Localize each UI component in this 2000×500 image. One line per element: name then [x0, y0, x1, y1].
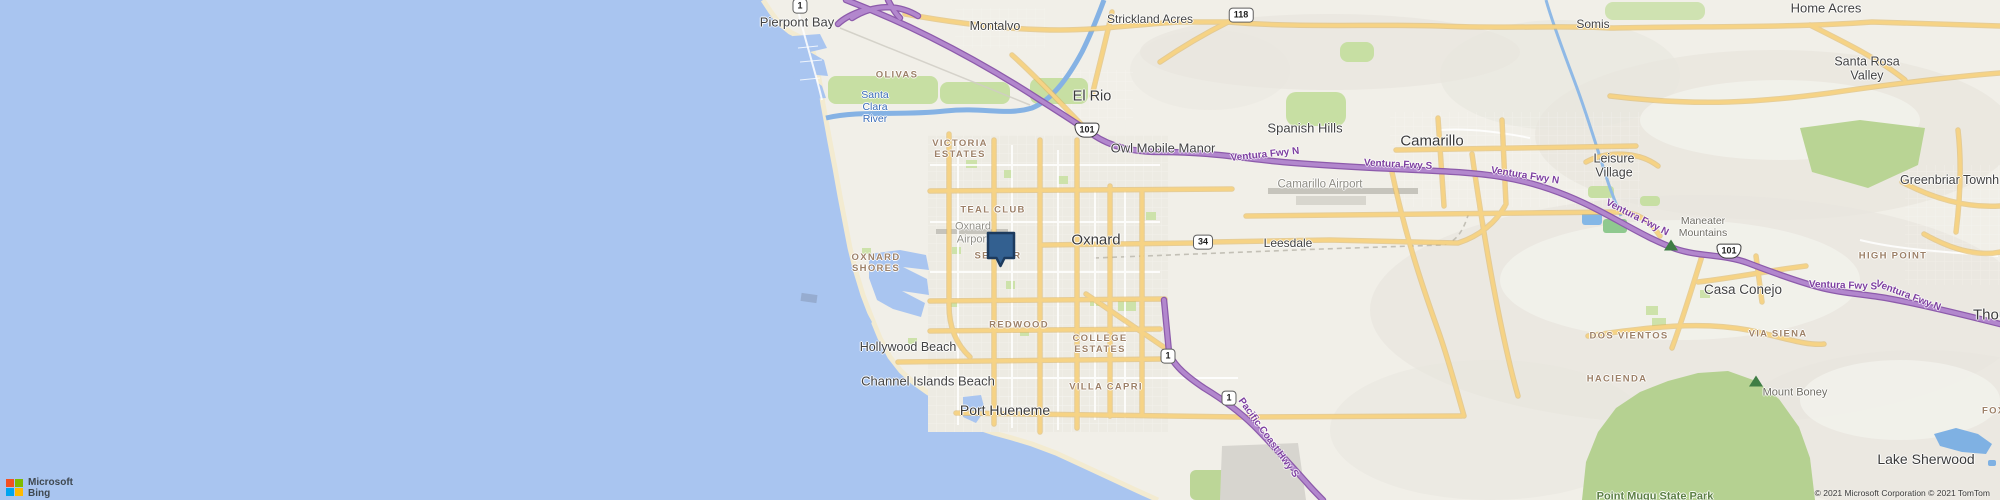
peak-icon-mount-boney	[1749, 376, 1763, 387]
ventura-fwy-n-label-2: Ventura Fwy N	[1490, 165, 1560, 187]
somis-label: Somis	[1576, 18, 1609, 32]
college-estates-label: COLLEGE ESTATES	[1072, 334, 1127, 356]
pierpont-bay-label: Pierpont Bay	[760, 16, 834, 31]
mount-boney-label: Mount Boney	[1763, 387, 1828, 400]
camarillo-label: Camarillo	[1400, 132, 1463, 149]
map-marker[interactable]	[984, 230, 1018, 270]
pacific-coast-hwy-s-label: Pacific Coast Hwy S	[1235, 396, 1300, 480]
olivas-label: OLIVAS	[876, 71, 918, 82]
bing-wordmark: Bing	[28, 488, 50, 499]
shield-ca1-mid: 1	[1160, 349, 1175, 364]
ventura-fwy-n-label-4: Ventura Fwy N	[1874, 278, 1942, 313]
home-acres-label: Home Acres	[1791, 2, 1862, 17]
point-mugu-state-park-label: Point Mugu State Park	[1597, 491, 1714, 500]
ventura-fwy-s-label-1: Ventura Fwy S	[1364, 157, 1433, 172]
bing-map-view[interactable]: 11011183410111Pierpont BayMontalvoStrick…	[0, 0, 2000, 500]
port-hueneme-label: Port Hueneme	[960, 402, 1050, 418]
ventura-fwy-n-label-1: Ventura Fwy N	[1230, 146, 1300, 165]
high-point-label: HIGH POINT	[1859, 252, 1927, 263]
leesdale-label: Leesdale	[1264, 237, 1313, 251]
santa-rosa-valley-label: Santa Rosa Valley	[1834, 55, 1899, 84]
leisure-village-label: Leisure Village	[1594, 152, 1635, 181]
montalvo-label: Montalvo	[970, 19, 1021, 33]
teal-club-label: TEAL CLUB	[960, 206, 1025, 217]
shield-us101-conejo: 101	[1716, 244, 1741, 259]
shield-ca1-north: 1	[792, 0, 807, 13]
camarillo-airport-label: Camarillo Airport	[1278, 178, 1363, 191]
peak-icon-maneater	[1664, 240, 1678, 251]
owl-mobile-manor-label: Owl Mobile Manor	[1111, 142, 1216, 157]
hollywood-beach-label: Hollywood Beach	[860, 340, 957, 354]
ventura-fwy-n-label-3: Ventura Fwy N	[1604, 197, 1671, 239]
santa-clara-river-label: Santa Clara River	[861, 89, 888, 125]
maneater-mountains-label: Maneater Mountains	[1679, 215, 1727, 239]
victoria-estates-label: VICTORIA ESTATES	[932, 139, 988, 161]
dos-vientos-label: DOS VIENTOS	[1589, 332, 1668, 343]
thousand-oaks-label-cutoff: Thou	[1973, 306, 2000, 323]
lake-sherwood-label: Lake Sherwood	[1877, 451, 1974, 467]
casa-conejo-label: Casa Conejo	[1704, 282, 1782, 298]
strickland-acres-label: Strickland Acres	[1107, 13, 1193, 27]
shield-us101-elrio: 101	[1074, 123, 1099, 138]
oxnard-shores-label: OXNARD SHORES	[852, 253, 901, 275]
microsoft-logo-icon	[6, 479, 23, 496]
redwood-label: REDWOOD	[989, 321, 1049, 332]
map-copyright: © 2021 Microsoft Corporation © 2021 TomT…	[1815, 488, 1990, 498]
foxmoor-label-cutoff: FOXMO	[1982, 407, 2000, 418]
shield-ca118: 118	[1229, 8, 1254, 23]
spanish-hills-label: Spanish Hills	[1267, 122, 1342, 137]
microsoft-wordmark: Microsoft	[28, 477, 73, 488]
via-siena-label: VIA SIENA	[1749, 330, 1808, 341]
shield-ca34: 34	[1193, 235, 1213, 250]
el-rio-label: El Rio	[1073, 89, 1112, 106]
hacienda-label: HACIENDA	[1587, 375, 1648, 386]
villa-capri-label: VILLA CAPRI	[1069, 383, 1143, 394]
map-pin-shape	[988, 233, 1014, 266]
channel-islands-beach-label: Channel Islands Beach	[861, 375, 995, 390]
shield-ca1-south: 1	[1221, 391, 1236, 406]
bing-attribution[interactable]: Microsoft Bing	[6, 477, 73, 499]
oxnard-label: Oxnard	[1071, 231, 1120, 248]
ventura-fwy-s-label-2: Ventura Fwy S	[1809, 279, 1878, 293]
greenbriar-town-label: Greenbriar Townh	[1900, 173, 1999, 187]
